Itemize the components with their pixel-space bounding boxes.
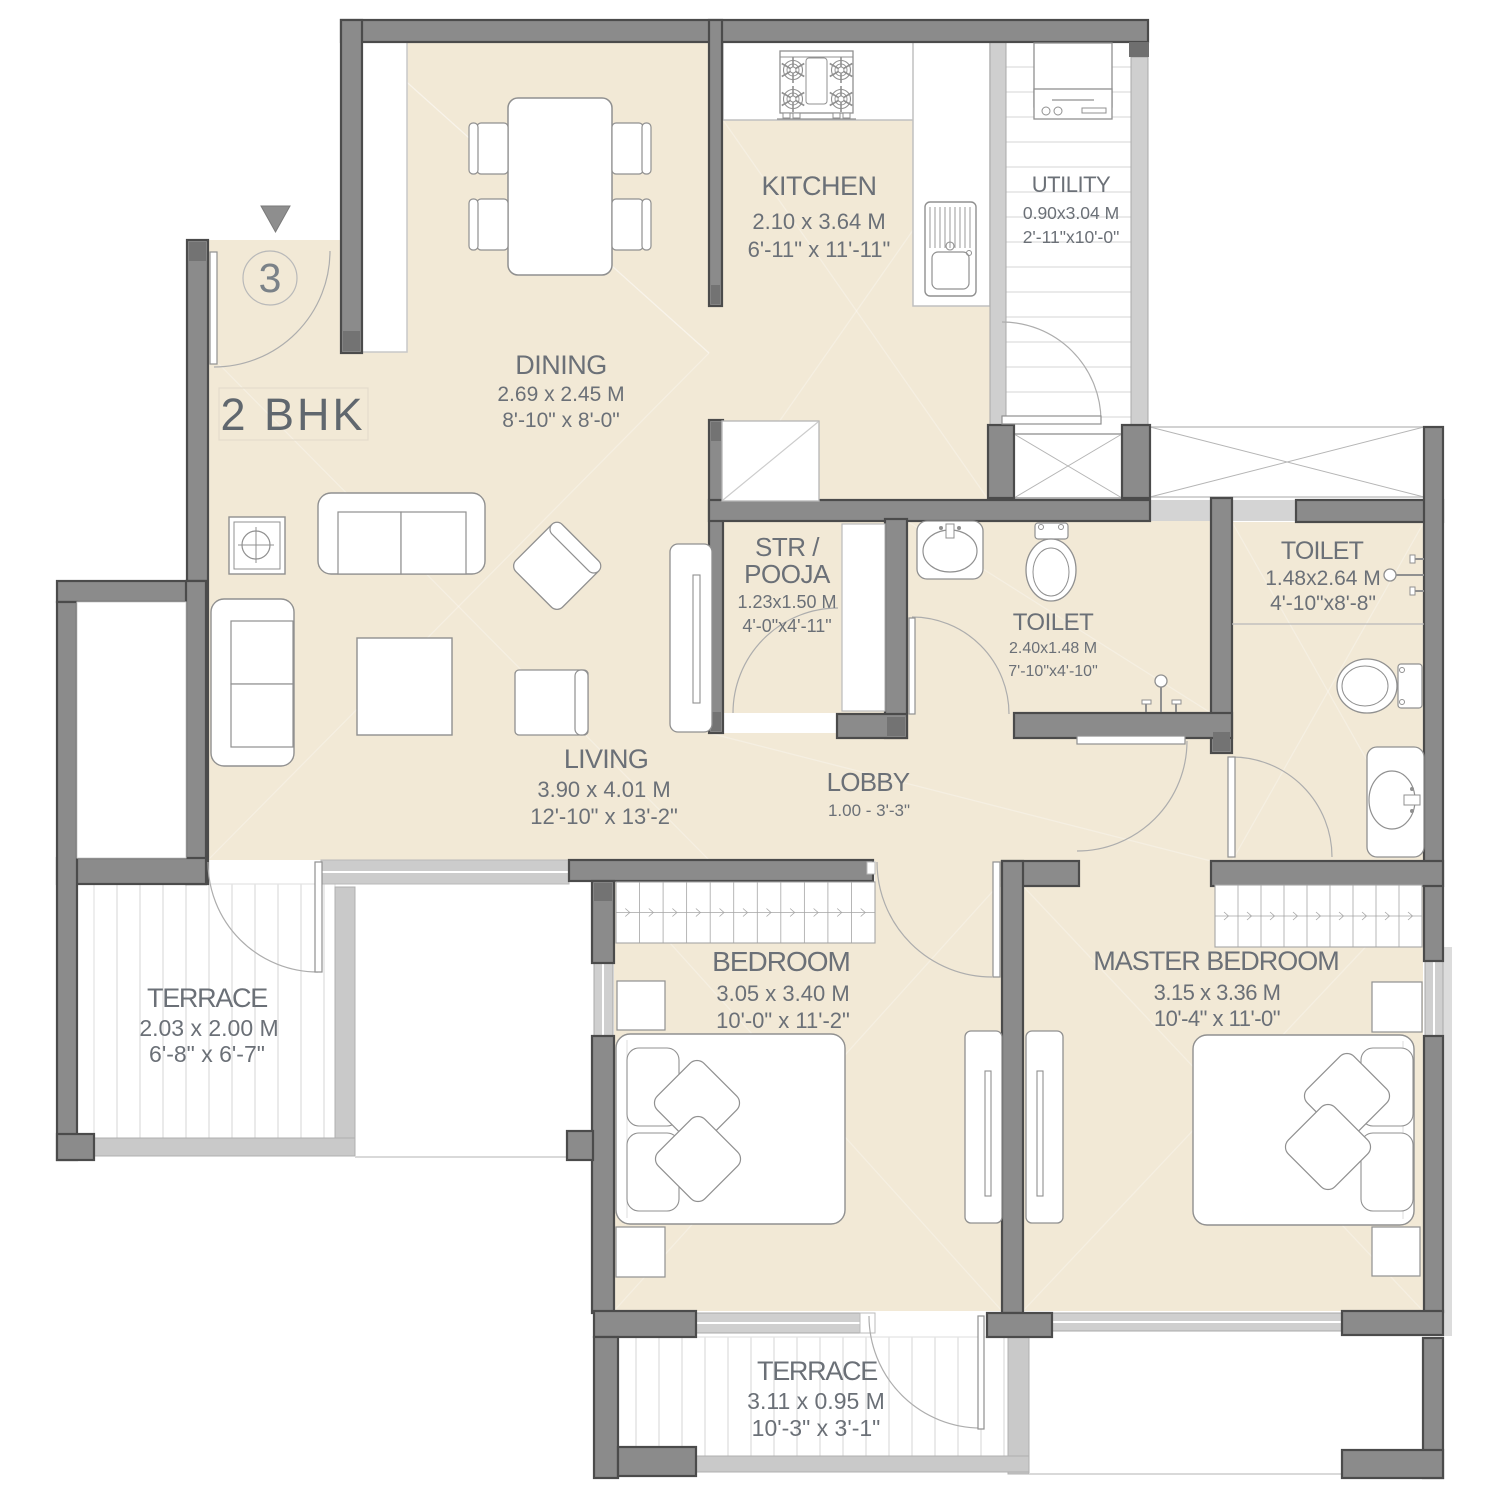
svg-text:10'-3" x 3'-1": 10'-3" x 3'-1" — [752, 1415, 881, 1441]
svg-text:10'-0" x 11'-2": 10'-0" x 11'-2" — [716, 1008, 850, 1033]
svg-text:2.03 x 2.00 M: 2.03 x 2.00 M — [139, 1015, 278, 1041]
svg-text:TERRACE: TERRACE — [147, 983, 267, 1013]
svg-text:1.48x2.64 M: 1.48x2.64 M — [1265, 567, 1381, 590]
svg-text:3.90 x 4.01 M: 3.90 x 4.01 M — [537, 777, 670, 802]
svg-text:3.11 x 0.95 M: 3.11 x 0.95 M — [747, 1388, 885, 1414]
svg-text:2.10 x 3.64 M: 2.10 x 3.64 M — [752, 209, 885, 234]
svg-text:2.40x1.48 M: 2.40x1.48 M — [1009, 640, 1097, 657]
svg-text:12'-10" x 13'-2": 12'-10" x 13'-2" — [530, 804, 678, 829]
svg-text:1.00 - 3'-3": 1.00 - 3'-3" — [828, 801, 910, 820]
svg-text:0.90x3.04 M: 0.90x3.04 M — [1023, 203, 1119, 223]
svg-text:TOILET: TOILET — [1281, 537, 1364, 565]
svg-text:TERRACE: TERRACE — [757, 1356, 877, 1386]
svg-text:MASTER BEDROOM: MASTER BEDROOM — [1093, 946, 1339, 976]
svg-text:8'-10" x 8'-0": 8'-10" x 8'-0" — [502, 409, 619, 432]
svg-text:3: 3 — [259, 255, 282, 301]
svg-text:DINING: DINING — [515, 350, 607, 380]
svg-text:3.05 x 3.40 M: 3.05 x 3.40 M — [716, 981, 849, 1006]
svg-text:10'-4" x 11'-0": 10'-4" x 11'-0" — [1154, 1006, 1280, 1031]
svg-text:2'-11"x10'-0": 2'-11"x10'-0" — [1023, 227, 1120, 247]
svg-text:4'-10"x8'-8": 4'-10"x8'-8" — [1270, 592, 1376, 615]
svg-text:KITCHEN: KITCHEN — [761, 171, 876, 201]
svg-text:LOBBY: LOBBY — [827, 767, 910, 797]
svg-text:4'-0"x4'-11": 4'-0"x4'-11" — [742, 616, 831, 636]
svg-text:1.23x1.50 M: 1.23x1.50 M — [737, 592, 836, 612]
svg-text:6'-8" x 6'-7": 6'-8" x 6'-7" — [149, 1041, 265, 1067]
svg-text:STR /: STR / — [755, 532, 820, 562]
svg-text:LIVING: LIVING — [564, 744, 648, 774]
svg-text:UTILITY: UTILITY — [1032, 172, 1111, 197]
svg-text:7'-10"x4'-10": 7'-10"x4'-10" — [1008, 663, 1098, 680]
svg-text:BEDROOM: BEDROOM — [712, 946, 850, 977]
svg-text:TOILET: TOILET — [1013, 609, 1094, 636]
svg-text:2 BHK: 2 BHK — [220, 389, 365, 440]
svg-text:2.69 x 2.45 M: 2.69 x 2.45 M — [497, 383, 624, 406]
svg-text:6'-11" x 11'-11": 6'-11" x 11'-11" — [748, 237, 891, 262]
svg-text:3.15 x 3.36 M: 3.15 x 3.36 M — [1154, 980, 1281, 1005]
svg-text:POOJA: POOJA — [744, 559, 831, 589]
